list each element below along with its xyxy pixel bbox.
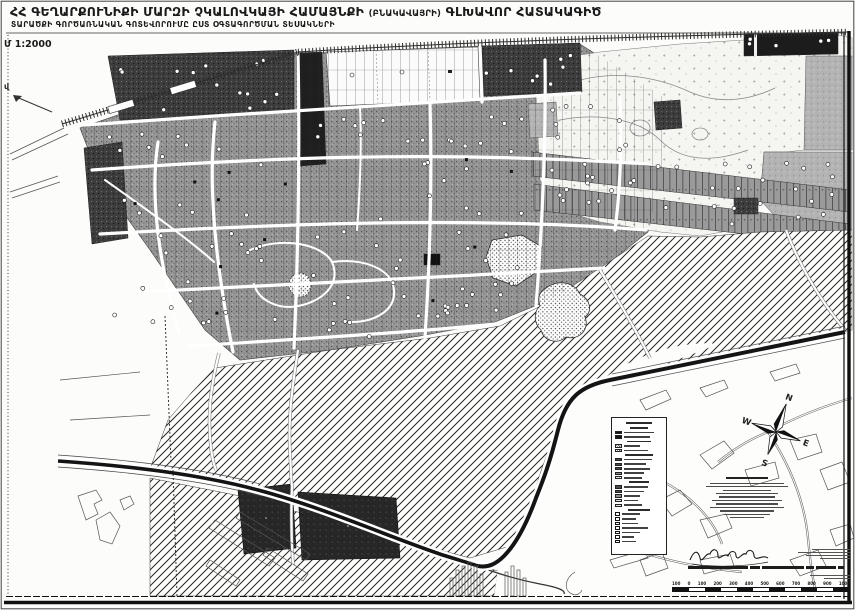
scale-segment: [673, 588, 689, 591]
legend-label-illegible: [624, 450, 648, 452]
notes-line-illegible: [710, 507, 784, 508]
legend-label-illegible: [624, 472, 644, 474]
annotation-line-illegible: [806, 555, 850, 556]
scanned-map-sheet: N E S W ՀՀ ԳԵՂԱՐՔՈՒՆԻՔԻ ՄԱՐԶԻ ՉԿԱԼՈՎԿԱՅԻ…: [0, 0, 855, 610]
legend-swatch: [615, 472, 622, 475]
legend-label-illegible: [622, 541, 636, 543]
scale-tick-label: 800: [807, 582, 815, 586]
scale-segment: [785, 588, 801, 591]
legend-swatch: [615, 499, 622, 502]
legend-label-illegible: [627, 441, 651, 443]
scale-tick-label: 900: [823, 582, 831, 586]
title-paren: (ԲՆԱԿԱՎԱՅՐԻ): [369, 9, 442, 19]
map-legend: [611, 417, 667, 555]
caption-segment-illegible: [838, 566, 844, 569]
scale-segment: [737, 588, 753, 591]
scale-segment: [705, 588, 721, 591]
notes-paragraph: [700, 477, 794, 521]
caption-segment-illegible: [688, 566, 748, 569]
legend-swatch: [615, 463, 622, 466]
notes-line-illegible: [706, 486, 788, 487]
title-main: ՀՀ ԳԵՂԱՐՔՈՒՆԻՔԻ ՄԱՐԶԻ ՉԿԱԼՈՎԿԱՅԻ ՀԱՄԱՅՆՔ…: [10, 4, 364, 19]
legend-label-illegible: [625, 454, 653, 456]
caption-segment-illegible: [816, 566, 836, 569]
legend-swatch: [615, 526, 620, 530]
notes-line-illegible: [719, 496, 775, 497]
legend-swatch: [615, 494, 622, 497]
legend-label-illegible: [624, 491, 644, 493]
caption-segment-illegible: [806, 566, 814, 569]
sheet-subtitle: ՏԱՐԱԾՔԻ ԳՈՐԾԱՌՆԱԿԱՆ ԳՈՏԵՎՈՐՈՒՄԸ ԸՍՏ ՕԳՏԱ…: [11, 20, 335, 29]
legend-swatch: [615, 535, 620, 539]
scale-tick-label: 100: [672, 582, 680, 586]
legend-swatch: [615, 444, 622, 447]
legend-label-illegible: [624, 495, 640, 497]
legend-swatch: [615, 517, 620, 521]
legend-label-illegible: [622, 518, 636, 520]
caption-segment-illegible: [750, 566, 760, 569]
legend-label-illegible: [624, 432, 654, 434]
scale-tick-label: 700: [792, 582, 800, 586]
scale-segment: [769, 588, 785, 591]
scale-bar-segments: [672, 587, 850, 592]
scale-tick-label: 0: [688, 582, 691, 586]
legend-label-illegible: [630, 427, 648, 429]
legend-swatch: [615, 449, 622, 452]
notes-line-illegible: [723, 490, 771, 491]
scale-tick-label: 400: [745, 582, 753, 586]
annotation-line-illegible: [824, 578, 850, 579]
legend-swatch: [615, 458, 622, 461]
legend-swatch: [615, 467, 622, 470]
legend-item: [615, 539, 663, 544]
notes-line-illegible: [716, 493, 778, 494]
scale-tick-label: 100: [698, 582, 706, 586]
notes-line-illegible: [724, 514, 770, 515]
scale-bar-labels: 10001002003004005006007008009001000: [672, 582, 850, 586]
annotation-line-illegible: [798, 552, 850, 553]
legend-swatch: [615, 485, 622, 488]
legend-label-illegible: [624, 468, 650, 470]
legend-swatch: [615, 522, 620, 526]
legend-label-illegible: [622, 532, 640, 534]
legend-label-illegible: [622, 513, 640, 515]
legend-swatch: [615, 512, 620, 516]
sheet-title: ՀՀ ԳԵՂԱՐՔՈՒՆԻՔԻ ՄԱՐԶԻ ՉԿԱԼՈՎԿԱՅԻ ՀԱՄԱՅՆՔ…: [10, 4, 602, 19]
bottom-caption: [688, 566, 850, 569]
legend-swatch: [615, 490, 622, 493]
scale-tick-label: 500: [760, 582, 768, 586]
legend-swatch: [615, 540, 620, 544]
scale-segment: [833, 588, 849, 591]
edge-marker: վ: [4, 82, 9, 91]
legend-swatch: [615, 504, 622, 507]
legend-label-illegible: [624, 504, 642, 506]
notes-line-illegible: [712, 500, 782, 501]
caption-segment-illegible: [762, 566, 804, 569]
legend-label-illegible: [624, 463, 646, 465]
annotation-line-illegible: [810, 575, 850, 576]
title-tail: ԳԼԽԱՎՈՐ ՀԱՏԱԿԱԳԻԾ: [446, 4, 602, 19]
notes-line-illegible: [716, 503, 778, 504]
legend-swatch: [615, 476, 622, 479]
scale-note: Մ 1:2000: [4, 39, 52, 50]
scale-segment: [689, 588, 705, 591]
legend-label-illegible: [622, 536, 634, 538]
notes-line-illegible: [710, 483, 784, 484]
legend-swatch: [615, 435, 622, 438]
notes-line-illegible: [730, 517, 764, 518]
legend-label-illegible: [624, 500, 638, 502]
legend-label-illegible: [624, 477, 642, 479]
annotation-line-illegible: [820, 558, 850, 559]
scale-tick-label: 300: [729, 582, 737, 586]
legend-swatch: [615, 431, 622, 434]
legend-label-illegible: [624, 436, 650, 438]
scale-tick-label: 1000: [839, 582, 850, 586]
scale-segment: [721, 588, 737, 591]
legend-label-illegible: [629, 481, 649, 483]
notes-heading-illegible: [726, 477, 768, 479]
scale-segment: [753, 588, 769, 591]
annotation-line-illegible: [812, 549, 850, 550]
side-annotation-2: [798, 575, 850, 581]
graphic-scale-bar: 10001002003004005006007008009001000: [672, 582, 850, 592]
legend-label-illegible: [628, 509, 650, 511]
legend-label-illegible: [622, 527, 648, 529]
notes-line-illegible: [720, 510, 774, 511]
legend-swatch: [615, 531, 620, 535]
legend-label-illegible: [624, 459, 652, 461]
legend-label-illegible: [626, 422, 652, 424]
legend-label-illegible: [624, 445, 640, 447]
legend-label-illegible: [624, 486, 648, 488]
scale-tick-label: 200: [713, 582, 721, 586]
scale-segment: [801, 588, 817, 591]
scale-segment: [817, 588, 833, 591]
legend-label-illegible: [622, 523, 638, 525]
side-annotation: [784, 549, 850, 561]
scale-tick-label: 600: [776, 582, 784, 586]
